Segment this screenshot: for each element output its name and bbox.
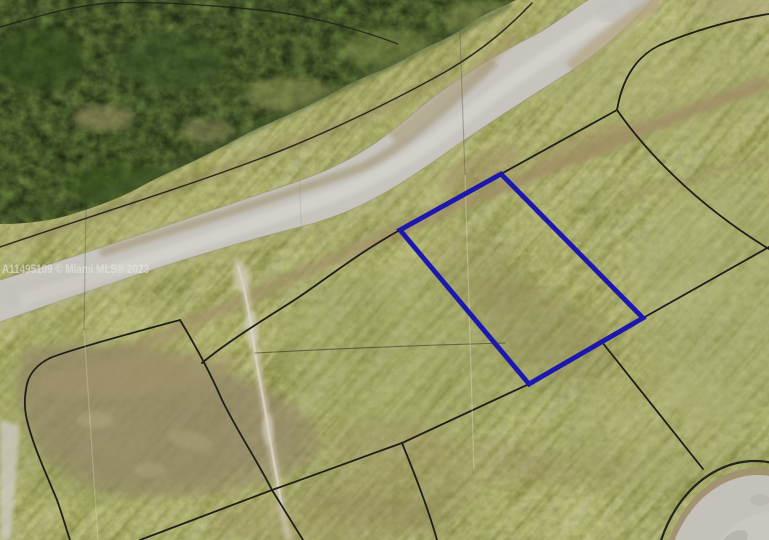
svg-text:A11495109 © Miami MLS® 2023: A11495109 © Miami MLS® 2023 — [2, 264, 149, 276]
